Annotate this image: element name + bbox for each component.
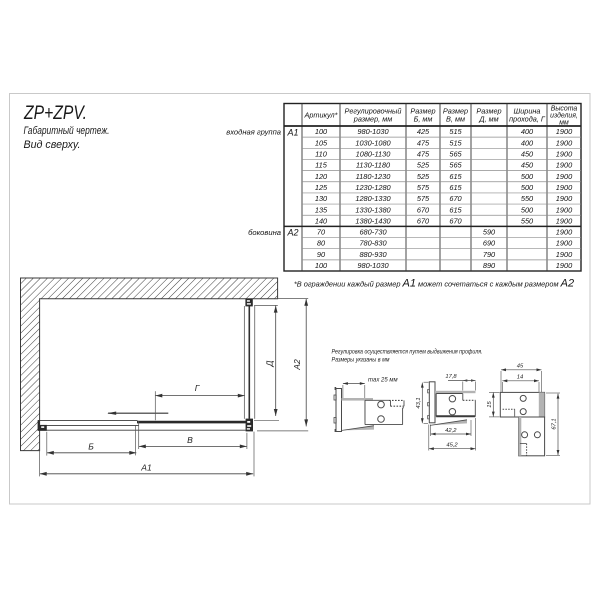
svg-text:575: 575: [417, 194, 430, 203]
svg-text:1900: 1900: [556, 194, 573, 203]
svg-text:515: 515: [449, 138, 462, 147]
svg-text:980-1030: 980-1030: [357, 127, 389, 136]
svg-text:1030-1080: 1030-1080: [355, 138, 391, 147]
svg-text:боковина: боковина: [248, 228, 281, 237]
svg-text:450: 450: [521, 150, 534, 159]
svg-text:1130-1180: 1130-1180: [356, 161, 391, 170]
svg-text:входная группа: входная группа: [226, 128, 281, 137]
svg-text:1900: 1900: [556, 150, 573, 159]
svg-text:980-1030: 980-1030: [357, 261, 389, 270]
svg-text:1900: 1900: [556, 216, 573, 225]
svg-text:А2: А2: [286, 228, 298, 238]
svg-text:мм: мм: [559, 120, 569, 127]
svg-text:Вид сверху.: Вид сверху.: [24, 139, 81, 151]
svg-text:14: 14: [517, 375, 523, 381]
svg-text:42,2: 42,2: [445, 428, 457, 434]
svg-text:15: 15: [487, 401, 493, 408]
svg-text:1900: 1900: [556, 261, 573, 270]
svg-text:Артикул*: Артикул*: [303, 111, 338, 120]
svg-text:475: 475: [417, 150, 430, 159]
svg-text:670: 670: [417, 205, 430, 214]
svg-text:550: 550: [521, 194, 534, 203]
svg-text:670: 670: [449, 216, 462, 225]
svg-text:Размеры указаны в мм: Размеры указаны в мм: [332, 357, 390, 364]
svg-text:изделия,: изделия,: [550, 112, 578, 120]
svg-text:890: 890: [483, 261, 496, 270]
svg-text:780-830: 780-830: [359, 239, 387, 248]
svg-text:100: 100: [315, 127, 328, 136]
svg-text:670: 670: [417, 216, 430, 225]
svg-text:1900: 1900: [556, 127, 573, 136]
svg-text:ZP+ZPV.: ZP+ZPV.: [23, 102, 87, 124]
svg-text:590: 590: [483, 228, 496, 237]
svg-text:17,8: 17,8: [445, 374, 457, 380]
svg-text:67,1: 67,1: [551, 418, 557, 429]
svg-text:135: 135: [315, 205, 328, 214]
svg-text:125: 125: [315, 183, 328, 192]
svg-text:Регулировка осуществляется пут: Регулировка осуществляется путем выдвиже…: [332, 347, 483, 355]
svg-text:1180-1230: 1180-1230: [356, 172, 392, 181]
svg-text:140: 140: [315, 216, 328, 225]
svg-text:790: 790: [483, 250, 496, 259]
svg-text:670: 670: [449, 194, 462, 203]
svg-text:А1: А1: [286, 127, 298, 137]
svg-text:max 25 мм: max 25 мм: [368, 377, 398, 383]
svg-text:105: 105: [315, 138, 328, 147]
svg-text:1900: 1900: [556, 172, 573, 181]
svg-text:1330-1380: 1330-1380: [355, 205, 391, 214]
svg-text:45: 45: [517, 364, 524, 370]
svg-text:100: 100: [315, 261, 328, 270]
svg-text:565: 565: [449, 150, 462, 159]
svg-text:525: 525: [417, 172, 430, 181]
svg-text:500: 500: [521, 183, 534, 192]
svg-text:450: 450: [521, 161, 534, 170]
svg-text:Высота: Высота: [551, 106, 578, 113]
svg-text:1900: 1900: [556, 239, 573, 248]
svg-text:Б: Б: [88, 441, 94, 451]
svg-text:прохода, Г: прохода, Г: [509, 115, 546, 124]
svg-text:80: 80: [317, 239, 326, 248]
svg-text:А2: А2: [292, 359, 302, 371]
svg-text:110: 110: [315, 150, 328, 159]
svg-text:500: 500: [521, 205, 534, 214]
svg-text:Б, мм: Б, мм: [414, 115, 433, 124]
svg-text:В, мм: В, мм: [446, 115, 465, 124]
svg-text:880-930: 880-930: [359, 250, 387, 259]
svg-text:1080-1130: 1080-1130: [356, 150, 392, 159]
svg-text:690: 690: [483, 239, 496, 248]
svg-text:45,2: 45,2: [446, 442, 458, 448]
svg-text:70: 70: [317, 228, 326, 237]
svg-text:90: 90: [317, 250, 326, 259]
svg-text:Габаритный чертеж.: Габаритный чертеж.: [24, 125, 110, 137]
svg-text:1900: 1900: [556, 161, 573, 170]
svg-text:размер, мм: размер, мм: [353, 115, 392, 124]
svg-text:А1: А1: [140, 462, 152, 472]
svg-text:1380-1430: 1380-1430: [355, 216, 391, 225]
svg-text:1900: 1900: [556, 138, 573, 147]
svg-text:1280-1330: 1280-1330: [355, 194, 391, 203]
svg-text:680-730: 680-730: [359, 228, 387, 237]
svg-text:1230-1280: 1230-1280: [355, 183, 391, 192]
svg-text:1900: 1900: [556, 228, 573, 237]
svg-text:550: 550: [521, 216, 534, 225]
svg-text:400: 400: [521, 127, 534, 136]
svg-text:1900: 1900: [556, 205, 573, 214]
svg-text:615: 615: [449, 205, 462, 214]
svg-text:525: 525: [417, 161, 430, 170]
svg-text:565: 565: [449, 161, 462, 170]
svg-text:575: 575: [417, 183, 430, 192]
svg-text:615: 615: [449, 183, 462, 192]
svg-text:115: 115: [315, 161, 328, 170]
svg-text:120: 120: [315, 172, 328, 181]
svg-text:Д, мм: Д, мм: [478, 115, 498, 124]
svg-text:Д: Д: [264, 361, 274, 368]
svg-text:1900: 1900: [556, 250, 573, 259]
svg-text:400: 400: [521, 138, 534, 147]
svg-text:425: 425: [417, 127, 430, 136]
svg-text:515: 515: [449, 127, 462, 136]
svg-text:*В ограждении каждый размер А1: *В ограждении каждый размер А1 может соч…: [294, 278, 574, 290]
svg-text:500: 500: [521, 172, 534, 181]
svg-text:615: 615: [449, 172, 462, 181]
svg-text:475: 475: [417, 138, 430, 147]
svg-text:1900: 1900: [556, 183, 573, 192]
svg-text:130: 130: [315, 194, 328, 203]
svg-text:43,1: 43,1: [416, 397, 422, 408]
svg-text:В: В: [187, 435, 193, 445]
